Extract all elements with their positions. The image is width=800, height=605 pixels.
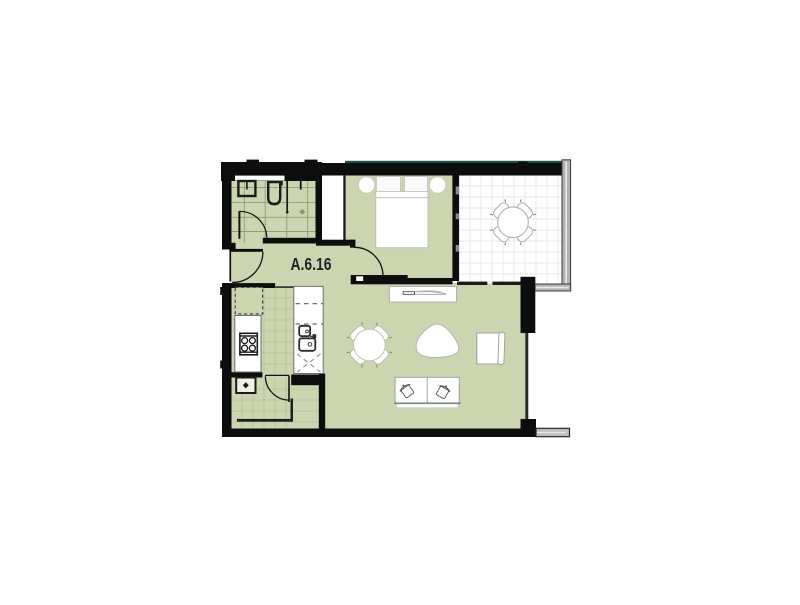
svg-text:A.6.16: A.6.16 [291, 254, 332, 274]
